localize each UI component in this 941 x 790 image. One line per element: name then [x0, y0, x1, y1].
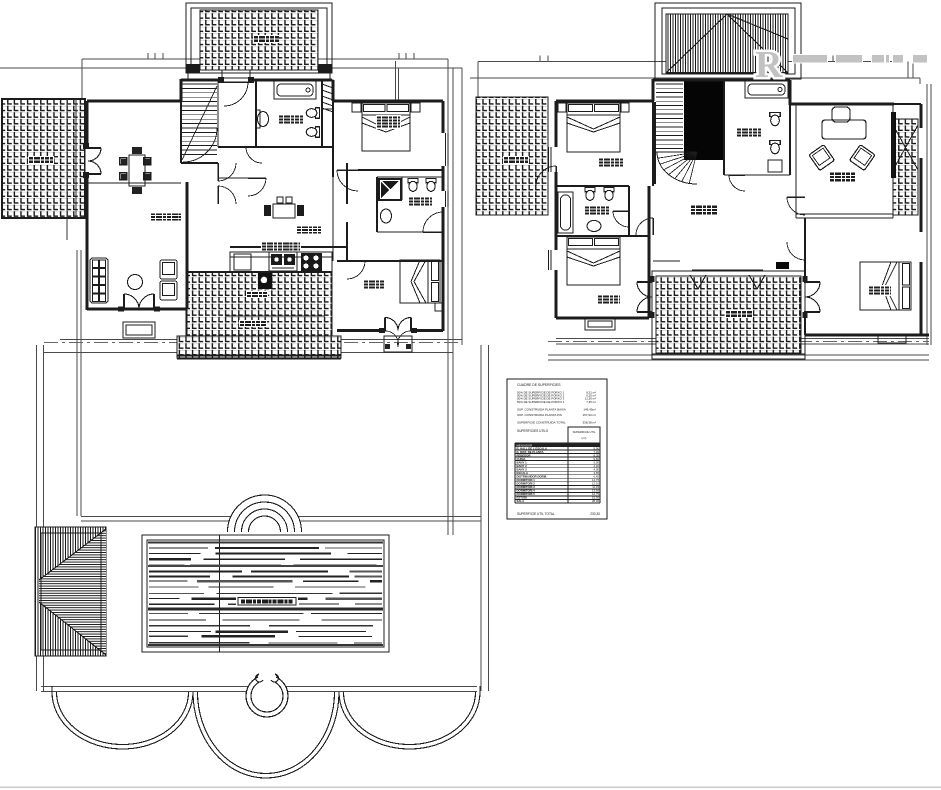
svg-text:149,45m²: 149,45m²	[583, 408, 596, 412]
svg-text:SUPERFICIES UTILS: SUPERFICIES UTILS	[517, 429, 548, 433]
svg-text:SUPERFICIE UTIL: SUPERFICIE UTIL	[573, 430, 596, 434]
svg-text:MENJADOR: MENJADOR	[517, 443, 533, 447]
svg-text:7,35 m²: 7,35 m²	[586, 400, 596, 404]
svg-text:230,30: 230,30	[590, 512, 600, 516]
svg-text:338,38 m²: 338,38 m²	[582, 421, 596, 425]
svg-text:157,93 m²: 157,93 m²	[582, 413, 596, 417]
svg-text:SUPERFICIE CONSTRUIDA TOTAL: SUPERFICIE CONSTRUIDA TOTAL	[517, 421, 566, 425]
svg-text:50% DE SUPERFICIE DE PORXO 4: 50% DE SUPERFICIE DE PORXO 4	[517, 400, 565, 404]
svg-text:R: R	[755, 44, 783, 86]
svg-text:SUP. CONSTRUIDA PLANTA PIS: SUP. CONSTRUIDA PLANTA PIS	[517, 413, 562, 417]
svg-text:SUPERFICIE UTIL TOTAL: SUPERFICIE UTIL TOTAL	[517, 512, 555, 516]
svg-text:(m²): (m²)	[582, 436, 587, 440]
svg-text:SUP. CONSTRUIDA PLANTA BAIXA: SUP. CONSTRUIDA PLANTA BAIXA	[517, 408, 566, 412]
svg-text:CUADRE DE SUPERFICIES: CUADRE DE SUPERFICIES	[517, 383, 561, 387]
